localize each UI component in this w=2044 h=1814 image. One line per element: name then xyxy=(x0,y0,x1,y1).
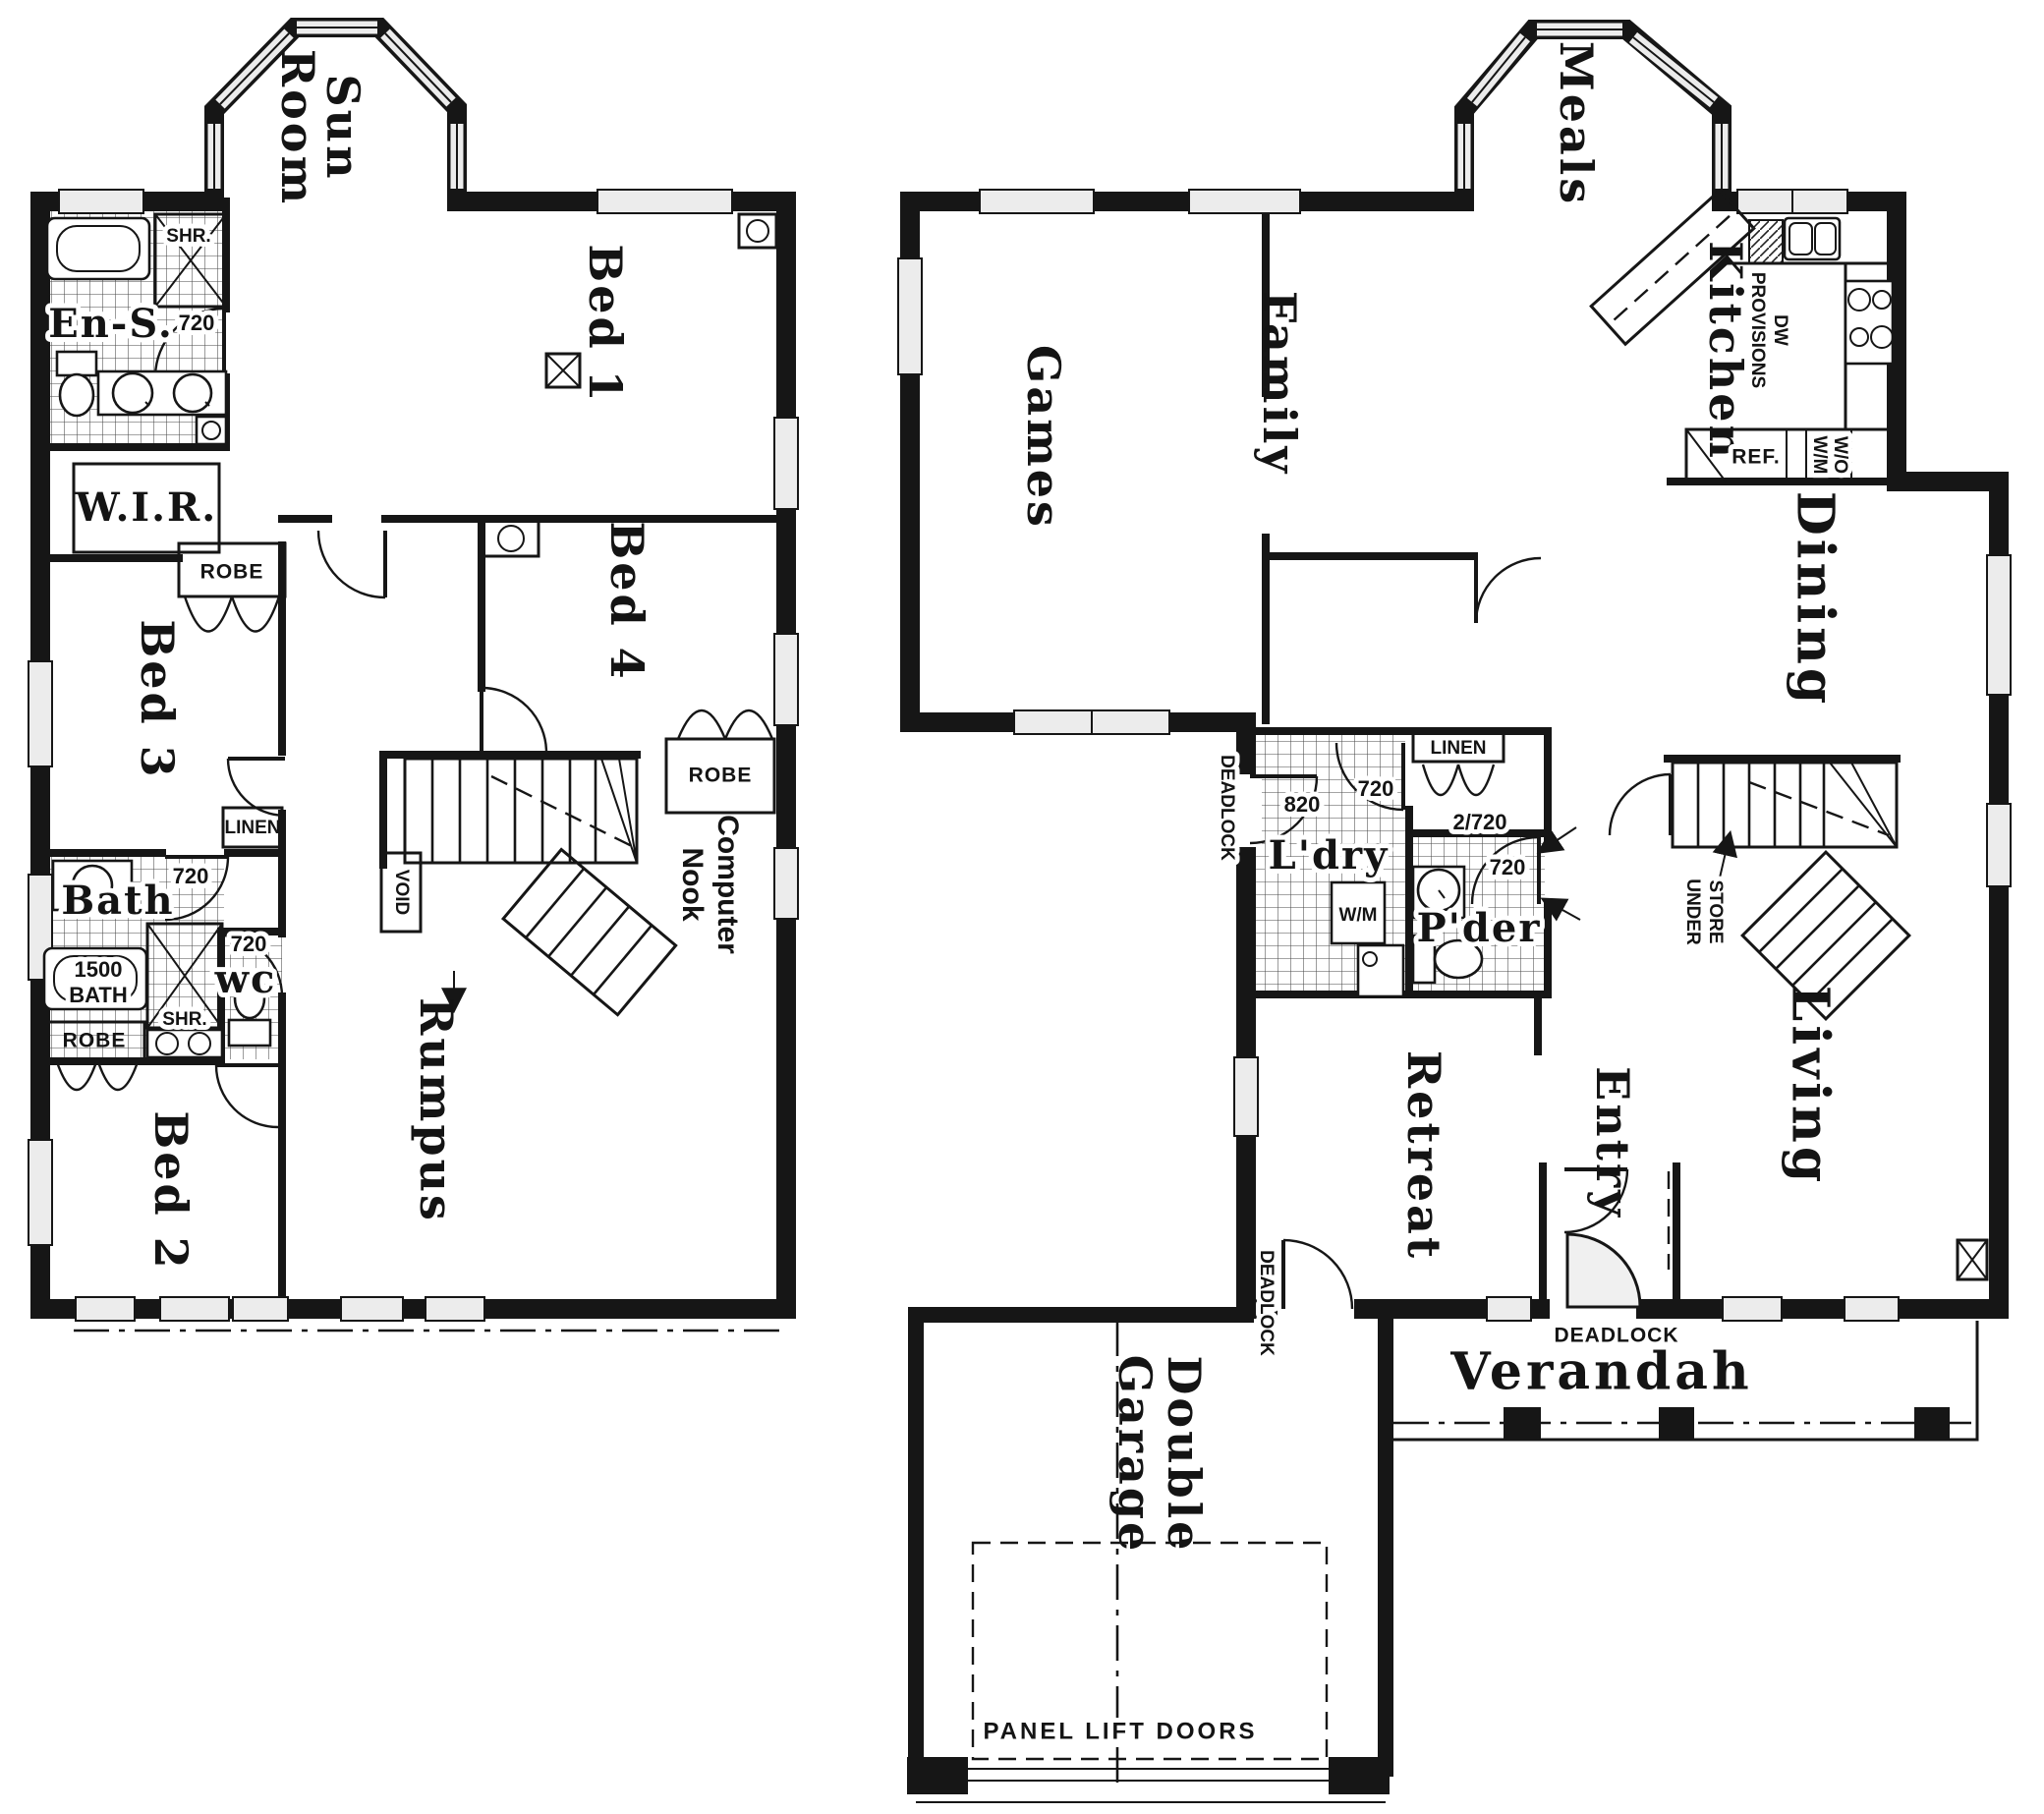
dim-laundry-ext: 820 xyxy=(1284,792,1321,817)
label-bath: Bath xyxy=(61,878,174,924)
bed1-floor-duct xyxy=(546,354,580,387)
verandah-structure xyxy=(1386,1240,1987,1440)
label-fridge: REF. xyxy=(1732,446,1781,469)
entry-door xyxy=(1567,1234,1640,1307)
label-dining: Dining xyxy=(1786,491,1845,709)
label-powder: P'der xyxy=(1417,905,1542,951)
laundry-trough xyxy=(1358,945,1403,996)
label-bed-2: Bed 2 xyxy=(144,1110,198,1271)
label-robe-nook: ROBE xyxy=(689,765,753,787)
label-bed-4: Bed 4 xyxy=(600,521,653,681)
label-deadlock-laundry: DEADLOCK xyxy=(1217,755,1237,861)
label-ens-shower: SHR. xyxy=(166,226,210,247)
floor-plan-drawing: SunRoom Bed 1 En-S. 720 SHR. W.I.R. ROBE… xyxy=(0,0,2044,1814)
label-family: Family xyxy=(1253,291,1306,476)
label-tub-bath: BATH xyxy=(69,983,127,1007)
label-computer-nook: ComputerNook xyxy=(676,815,744,954)
label-robe-bed2: ROBE xyxy=(63,1030,127,1052)
label-panel-lift-doors: PANEL LIFT DOORS xyxy=(983,1718,1257,1744)
label-bed-1: Bed 1 xyxy=(579,244,632,404)
label-entry: Entry xyxy=(1586,1066,1639,1219)
label-rumpus: Rumpus xyxy=(410,997,463,1223)
ensuite-bathtub xyxy=(47,218,149,279)
dim-linen-doors: 2/720 xyxy=(1452,810,1506,834)
label-bed-3: Bed 3 xyxy=(131,619,184,779)
ensuite-toilet xyxy=(57,352,96,375)
label-ensuite: En-S. xyxy=(48,301,174,347)
label-dw-provisions: DWPROVISIONS xyxy=(1747,272,1790,388)
label-double-garage: DoubleGarage xyxy=(1108,1355,1211,1555)
upper-stairs xyxy=(381,759,676,1015)
label-robe-hall: ROBE xyxy=(200,561,264,584)
label-living: Living xyxy=(1781,986,1841,1186)
label-tub-1500: 1500 xyxy=(75,957,123,982)
label-linen-upper: LINEN xyxy=(225,818,281,838)
dim-powder-door: 720 xyxy=(1490,855,1526,879)
label-laundry: L'dry xyxy=(1269,832,1390,879)
dim-laundry-int: 720 xyxy=(1358,776,1394,801)
label-games: Games xyxy=(1017,345,1070,530)
label-wc: wc xyxy=(214,956,277,1002)
label-linen-ground: LINEN xyxy=(1431,738,1487,759)
label-deadlock-rear: DEADLOCK xyxy=(1256,1250,1277,1356)
dim-bath-door: 720 xyxy=(173,864,209,888)
label-verandah: Verandah xyxy=(1449,1342,1752,1402)
label-wir: W.I.R. xyxy=(75,484,217,531)
corner-post xyxy=(1958,1240,1987,1279)
label-wall-oven: W/OW/M xyxy=(1809,435,1850,474)
label-bath-shower: SHR. xyxy=(162,1009,206,1030)
label-kitchen: Kitchen xyxy=(1699,241,1752,461)
label-store-under: STOREUNDER xyxy=(1682,879,1726,945)
dishwasher-provision xyxy=(1749,220,1783,263)
label-meals: Meals xyxy=(1550,41,1603,206)
ground-floor-plan: Meals Games Family Kitchen DWPROVISIONS … xyxy=(898,29,2011,1802)
dim-wc-door: 720 xyxy=(231,932,267,956)
upper-floor-plan: SunRoom Bed 1 En-S. 720 SHR. W.I.R. ROBE… xyxy=(28,28,798,1331)
dim-ensuite-door: 720 xyxy=(179,311,215,335)
label-void: VOID xyxy=(391,870,412,915)
label-washing-machine: W/M xyxy=(1338,905,1377,926)
floor-plan-canvas: SunRoom Bed 1 En-S. 720 SHR. W.I.R. ROBE… xyxy=(0,0,2044,1814)
label-sun-room: SunRoom xyxy=(271,49,369,206)
label-retreat: Retreat xyxy=(1397,1050,1450,1261)
